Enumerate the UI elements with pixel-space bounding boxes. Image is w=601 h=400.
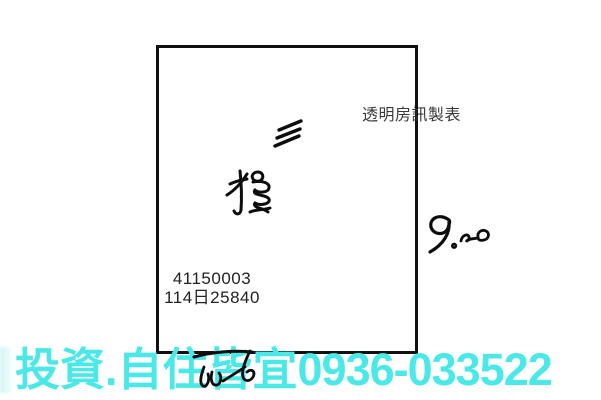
edge-ghost-artifact bbox=[0, 347, 13, 393]
handwritten-type-mark bbox=[224, 168, 274, 220]
parcel-number-line1: 41150003 bbox=[159, 269, 265, 288]
parcel-number-line2: 114日25840 bbox=[159, 288, 265, 307]
banner-phone-number: 0936-033522 bbox=[298, 344, 552, 395]
page-root: 41150003 114日25840 透明房訊製表 投資.自住皆宜0936-03… bbox=[0, 0, 601, 400]
handwritten-count-mark bbox=[272, 116, 306, 148]
handwritten-measurement bbox=[420, 211, 498, 255]
credit-label: 透明房訊製表 bbox=[362, 101, 461, 125]
handwritten-scribble bbox=[190, 345, 268, 391]
parcel-number-block: 41150003 114日25840 bbox=[159, 269, 265, 307]
plot-boundary-box: 41150003 114日25840 bbox=[156, 45, 418, 354]
ad-banner: 投資.自住皆宜0936-033522 bbox=[15, 345, 552, 395]
